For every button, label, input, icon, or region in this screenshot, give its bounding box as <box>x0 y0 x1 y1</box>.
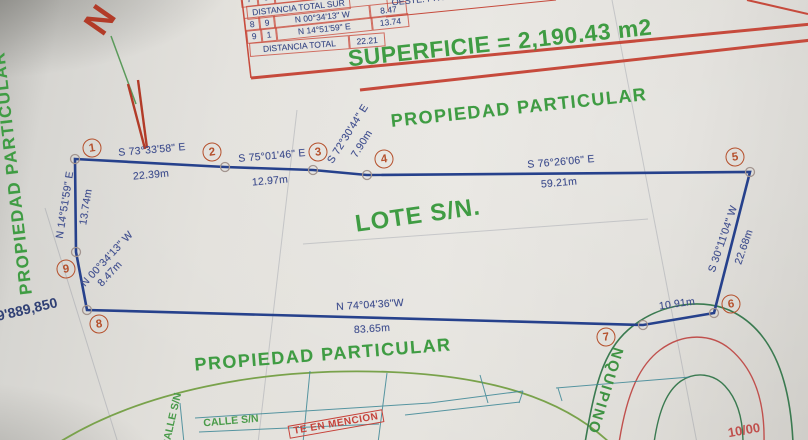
survey-plan-photo: 7 8 DISTANCIA TOTAL SUR 8 9 N 00°34'13" … <box>0 0 808 440</box>
parcel-boundary <box>75 159 750 325</box>
vertex-markers <box>71 155 755 330</box>
table-cell-to: 1 <box>261 26 277 41</box>
segment-7-8-distance: 83.65m <box>354 322 391 336</box>
north-arrow-needle <box>111 36 147 149</box>
